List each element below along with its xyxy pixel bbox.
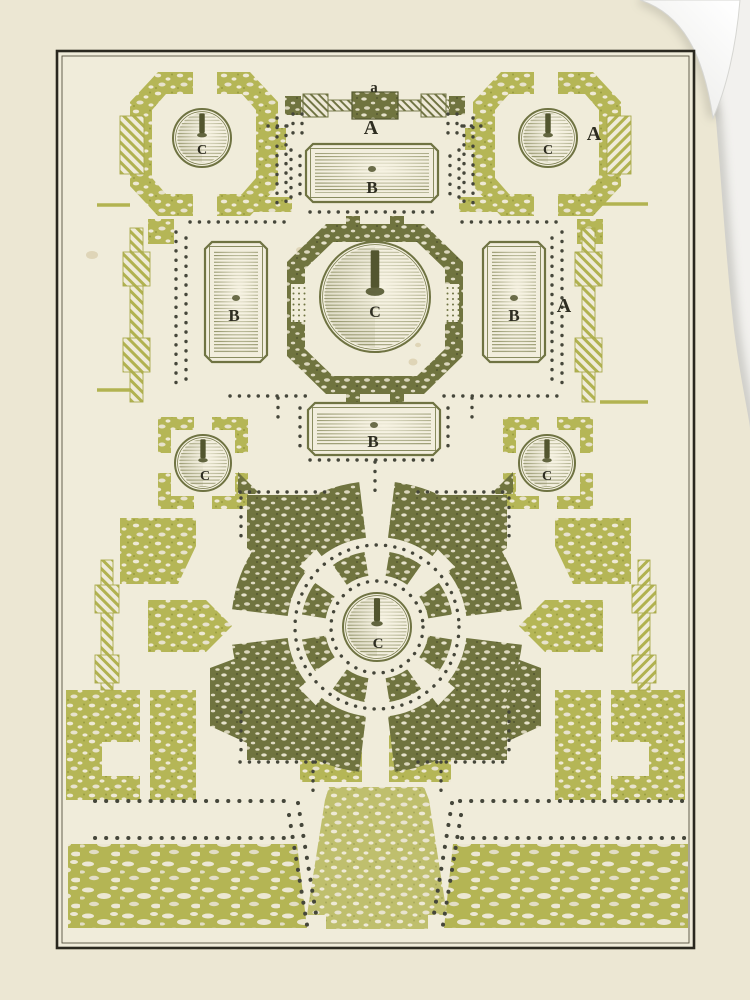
label-gate: A xyxy=(364,117,379,139)
statue-icon xyxy=(544,439,549,458)
label-basin-east: B xyxy=(508,306,519,325)
label-basin-west: B xyxy=(228,306,239,325)
fountain-basin xyxy=(173,109,231,167)
hedge-block xyxy=(148,219,174,244)
fountain-basin xyxy=(519,109,577,167)
label-fountain-east: C xyxy=(542,469,552,484)
statue-icon xyxy=(200,439,205,458)
lawn-southeast xyxy=(444,844,688,928)
path-connector xyxy=(250,197,292,212)
rectangular-basin xyxy=(205,242,267,362)
statue-icon xyxy=(371,250,380,287)
label-corner-right: A xyxy=(587,123,602,145)
statue-icon xyxy=(545,113,550,133)
label-fountain-center: C xyxy=(369,304,381,321)
label-fountain-northeast: C xyxy=(543,143,553,158)
gravel-dot-texture xyxy=(291,284,307,322)
garden-plan-svg: a A A A B B B B C C C C C C xyxy=(0,0,750,1000)
statue-icon xyxy=(374,598,380,621)
keystone-bed xyxy=(307,787,447,929)
label-fountain-northwest: C xyxy=(197,143,207,158)
gate-trellis xyxy=(285,92,465,119)
label-basin-south: B xyxy=(367,432,378,451)
label-basin-top: B xyxy=(366,178,377,197)
lawn-southwest xyxy=(68,844,307,928)
gravel-dot-texture xyxy=(443,284,459,322)
statue-icon xyxy=(199,113,204,133)
label-fountain-south: C xyxy=(373,636,384,652)
poster-artwork: a A A A B B B B C C C C C C xyxy=(0,0,750,1000)
rectangular-basin xyxy=(483,242,545,362)
fountain-basin xyxy=(320,242,430,352)
label-fountain-west: C xyxy=(200,469,210,484)
label-east-wall: A xyxy=(557,295,572,317)
label-gate-small: a xyxy=(370,80,378,96)
hedge-wall-hatch xyxy=(120,116,144,174)
